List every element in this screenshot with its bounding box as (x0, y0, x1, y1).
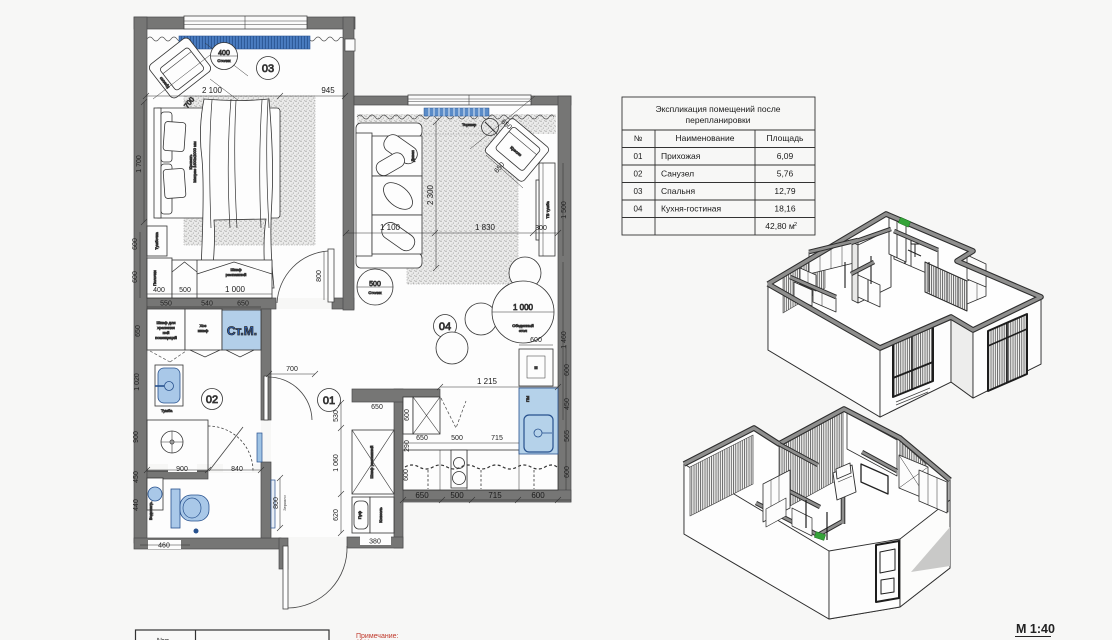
svg-text:стол: стол (519, 328, 528, 333)
svg-text:530: 530 (333, 410, 340, 422)
svg-text:1 460: 1 460 (561, 331, 568, 349)
svg-text:800: 800 (273, 497, 280, 509)
svg-text:600: 600 (564, 466, 571, 478)
svg-text:440: 440 (133, 499, 140, 511)
svg-text:500: 500 (451, 435, 463, 442)
svg-text:Прихожая: Прихожая (661, 151, 701, 161)
svg-text:42,80 м: 42,80 м (765, 221, 795, 231)
svg-text:Площадь: Площадь (766, 133, 804, 143)
svg-text:02: 02 (206, 394, 218, 406)
svg-text:290: 290 (404, 440, 411, 452)
svg-text:500: 500 (450, 491, 464, 500)
svg-text:№: № (634, 134, 643, 143)
svg-text:5,76: 5,76 (777, 169, 794, 179)
svg-text:Ст.М.: Ст.М. (227, 324, 257, 338)
svg-text:945: 945 (321, 86, 335, 95)
svg-text:6,09: 6,09 (777, 151, 794, 161)
svg-text:01: 01 (323, 395, 335, 407)
svg-text:Торшер: Торшер (462, 122, 477, 127)
svg-text:1 020: 1 020 (134, 373, 141, 391)
svg-text:450: 450 (133, 471, 140, 483)
svg-text:Зеркало: Зеркало (282, 494, 287, 510)
svg-text:450: 450 (564, 398, 571, 410)
svg-text:Санузел: Санузел (661, 169, 694, 179)
svg-text:Матрас 1600х2000 мм: Матрас 1600х2000 мм (192, 141, 197, 183)
svg-text:600: 600 (531, 491, 545, 500)
svg-text:460: 460 (158, 543, 170, 550)
svg-text:03: 03 (262, 63, 274, 75)
svg-text:ТВ тумба: ТВ тумба (545, 201, 550, 219)
svg-text:1 000: 1 000 (225, 285, 246, 294)
svg-text:Диван: Диван (410, 150, 415, 161)
svg-text:Наименование: Наименование (676, 133, 735, 143)
svg-text:600: 600 (403, 469, 410, 481)
svg-text:650: 650 (416, 435, 428, 442)
svg-text:Тумба: Тумба (161, 408, 173, 413)
svg-text:2 100: 2 100 (202, 86, 223, 95)
svg-text:04: 04 (634, 205, 643, 214)
svg-text:Спальня: Спальня (661, 186, 696, 196)
svg-text:650: 650 (415, 491, 429, 500)
svg-text:Шкаф распашной: Шкаф распашной (369, 446, 374, 479)
svg-text:715: 715 (488, 491, 502, 500)
svg-text:Водонагр.: Водонагр. (148, 501, 153, 520)
svg-text:2 300: 2 300 (426, 184, 435, 205)
svg-text:300: 300 (535, 225, 547, 232)
svg-text:1 000: 1 000 (513, 303, 534, 312)
svg-text:380: 380 (369, 539, 381, 546)
svg-text:650: 650 (135, 325, 142, 337)
svg-text:Пуф: Пуф (357, 510, 362, 519)
svg-text:620: 620 (333, 509, 340, 521)
svg-text:600: 600 (132, 238, 139, 250)
svg-text:Столик: Столик (217, 58, 230, 63)
svg-text:02: 02 (634, 170, 643, 179)
svg-text:840: 840 (231, 466, 243, 473)
svg-text:перепланировки: перепланировки (686, 115, 751, 125)
svg-text:600: 600 (564, 364, 571, 376)
svg-text:600: 600 (404, 409, 411, 421)
svg-text:1 060: 1 060 (333, 454, 340, 472)
svg-text:2: 2 (794, 222, 797, 228)
svg-text:Кухня-гостиная: Кухня-гостиная (661, 204, 722, 214)
svg-text:помещаций: помещаций (155, 335, 177, 340)
svg-text:Столик: Столик (368, 290, 381, 295)
svg-text:Ш: Ш (534, 366, 537, 370)
svg-text:715: 715 (491, 435, 503, 442)
svg-text:18,16: 18,16 (774, 204, 796, 214)
svg-text:Тумбочка: Тумбочка (154, 231, 159, 249)
svg-text:1 700: 1 700 (136, 155, 143, 173)
svg-text:600: 600 (132, 271, 139, 283)
svg-text:500: 500 (179, 287, 191, 294)
svg-text:700: 700 (286, 366, 298, 373)
svg-text:шкаф: шкаф (198, 328, 209, 333)
svg-text:650: 650 (237, 301, 249, 308)
svg-text:Полочки: Полочки (152, 270, 157, 286)
svg-text:Экспликация помещений после: Экспликация помещений после (655, 104, 780, 114)
svg-text:М 1:40: М 1:40 (1016, 622, 1055, 636)
svg-text:12,79: 12,79 (774, 186, 796, 196)
svg-text:ПМ: ПМ (525, 396, 530, 402)
svg-text:1 830: 1 830 (475, 223, 496, 232)
svg-text:распашной: распашной (226, 272, 247, 277)
svg-text:800: 800 (316, 270, 323, 282)
svg-text:№п.: №п. (157, 636, 171, 640)
svg-text:600: 600 (530, 337, 542, 344)
svg-text:400: 400 (153, 287, 165, 294)
svg-text:900: 900 (133, 431, 140, 443)
svg-text:01: 01 (634, 152, 643, 161)
svg-text:1 215: 1 215 (477, 377, 498, 386)
svg-text:03: 03 (634, 187, 643, 196)
svg-text:04: 04 (439, 321, 451, 333)
svg-text:900: 900 (176, 466, 188, 473)
svg-text:1 100: 1 100 (380, 223, 401, 232)
svg-text:Консоль: Консоль (378, 507, 383, 522)
svg-text:650: 650 (371, 404, 383, 411)
svg-text:1 500: 1 500 (561, 201, 568, 219)
svg-text:565: 565 (564, 430, 571, 442)
svg-text:540: 540 (201, 301, 213, 308)
svg-text:550: 550 (160, 301, 172, 308)
